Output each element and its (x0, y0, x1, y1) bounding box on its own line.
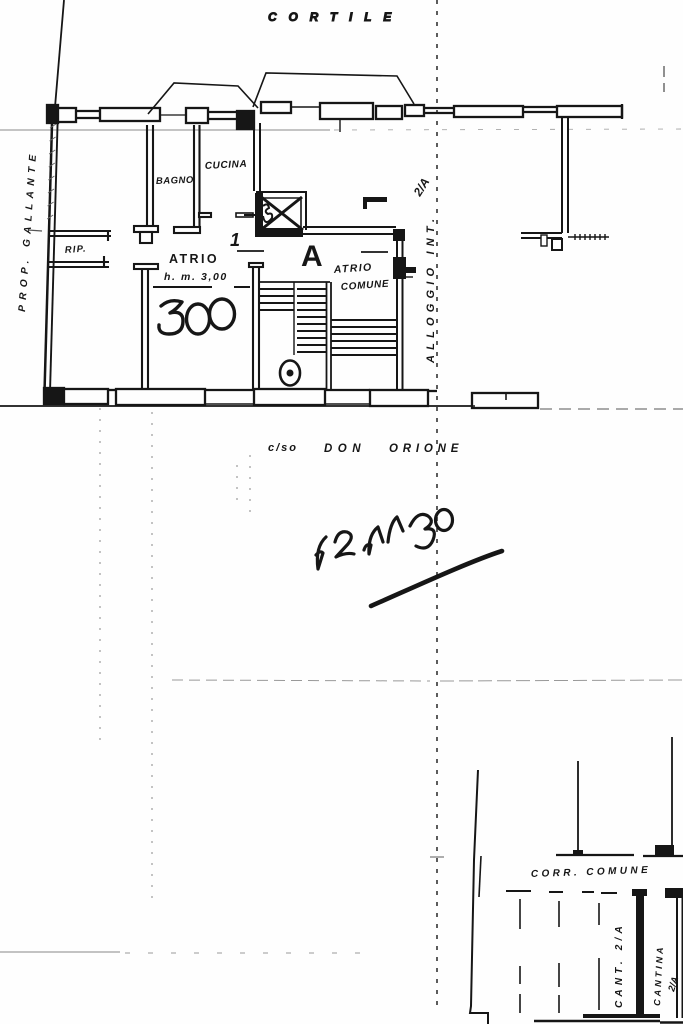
svg-text:c/so: c/so (268, 442, 298, 454)
svg-text:ORIONE: ORIONE (389, 443, 463, 455)
svg-text:CUCINA: CUCINA (205, 159, 248, 172)
svg-text:ALLOGGIO INT.: ALLOGGIO INT. (425, 214, 437, 364)
svg-text:h. m. 3,00: h. m. 3,00 (164, 271, 228, 283)
svg-text:ATRIO: ATRIO (169, 252, 219, 266)
svg-text:CANT. 2/A: CANT. 2/A (614, 922, 625, 1008)
svg-text:RIP.: RIP. (64, 243, 87, 256)
svg-text:BAGNO: BAGNO (156, 175, 194, 187)
svg-text:1: 1 (230, 230, 240, 250)
svg-text:DON: DON (324, 443, 366, 455)
svg-text:CORTILE: CORTILE (268, 10, 403, 24)
svg-text:A: A (301, 240, 323, 273)
